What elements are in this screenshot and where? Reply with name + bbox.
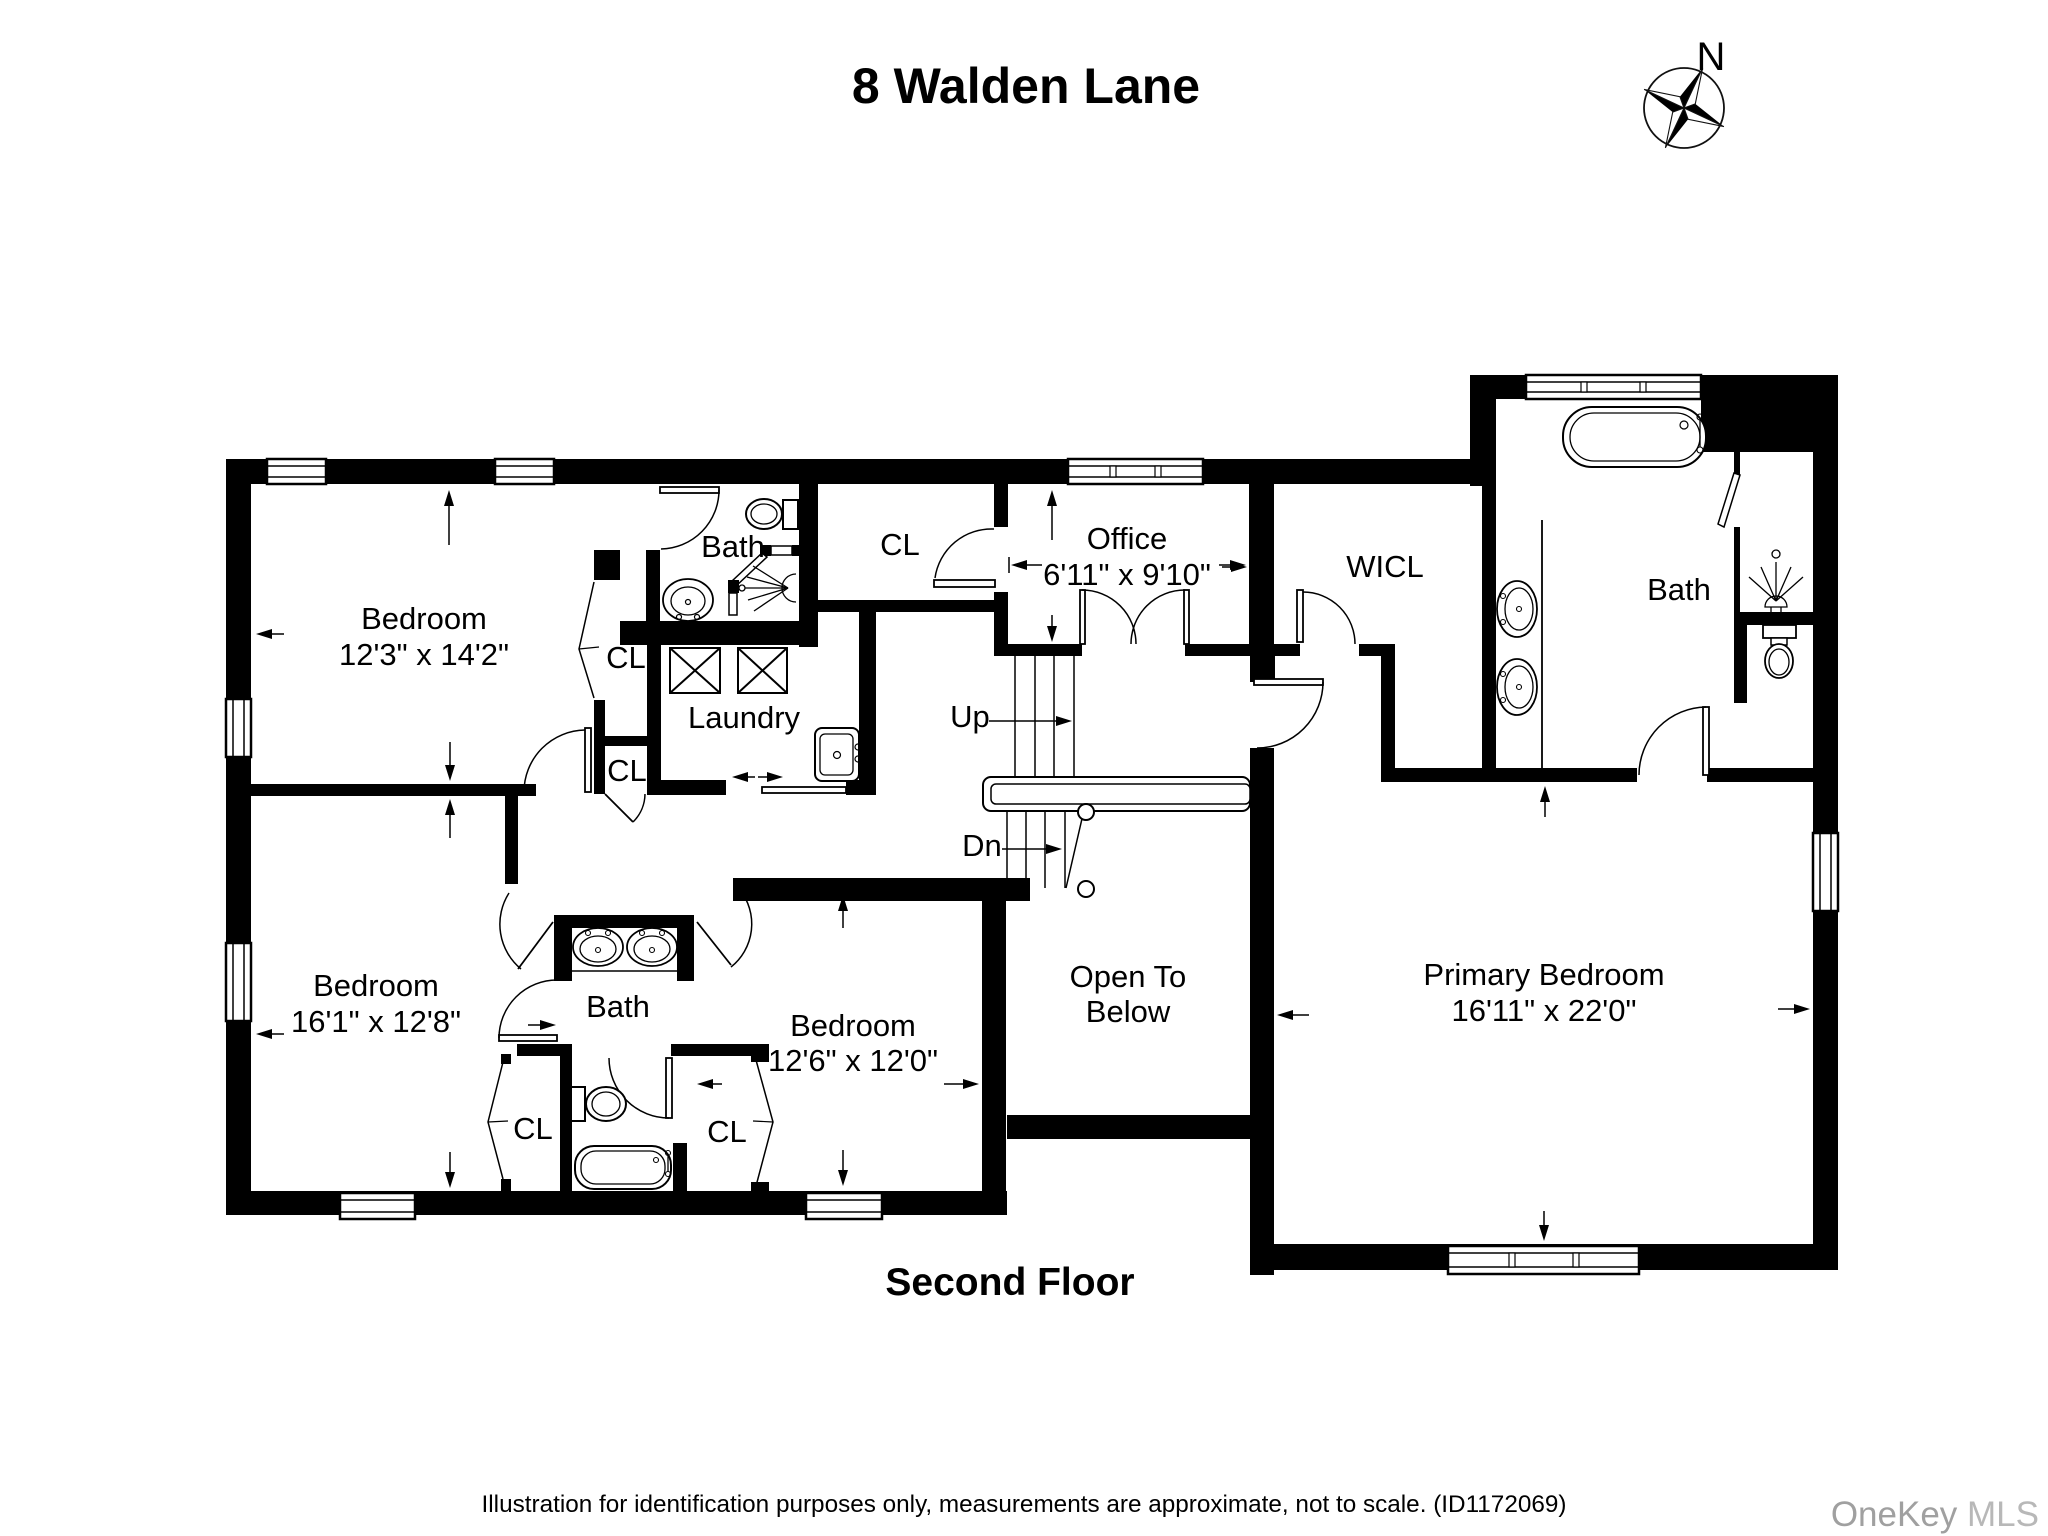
svg-text:Up: Up [950,699,990,734]
svg-text:N: N [1697,35,1726,79]
svg-text:8 Walden Lane: 8 Walden Lane [852,58,1200,114]
svg-text:Bath: Bath [1647,572,1711,607]
svg-text:6'11" x 9'10": 6'11" x 9'10" [1043,557,1211,592]
svg-text:Bedroom: Bedroom [790,1008,916,1043]
svg-text:Second Floor: Second Floor [885,1261,1134,1304]
svg-text:12'3" x 14'2": 12'3" x 14'2" [339,637,509,672]
svg-text:OneKey MLS: OneKey MLS [1831,1495,2039,1534]
svg-text:Below: Below [1086,994,1171,1029]
svg-text:Primary Bedroom: Primary Bedroom [1423,957,1664,992]
svg-text:Open To: Open To [1070,959,1187,994]
svg-text:CL: CL [606,640,646,675]
svg-text:Dn: Dn [962,828,1002,863]
svg-text:Laundry: Laundry [688,700,801,735]
svg-text:WICL: WICL [1346,549,1424,584]
svg-text:Bath: Bath [701,529,765,564]
svg-text:Illustration for identificatio: Illustration for identification purposes… [482,1491,1567,1518]
svg-text:Bedroom: Bedroom [361,601,487,636]
svg-text:16'1" x 12'8": 16'1" x 12'8" [291,1004,461,1039]
svg-text:CL: CL [880,527,920,562]
svg-text:Bath: Bath [586,989,650,1024]
svg-text:Bedroom: Bedroom [313,968,439,1003]
svg-text:16'11" x 22'0": 16'11" x 22'0" [1452,993,1637,1028]
svg-text:Office: Office [1087,521,1167,556]
svg-text:CL: CL [513,1111,553,1146]
svg-text:12'6" x 12'0": 12'6" x 12'0" [768,1043,938,1078]
svg-text:CL: CL [607,753,647,788]
svg-text:CL: CL [707,1114,747,1149]
